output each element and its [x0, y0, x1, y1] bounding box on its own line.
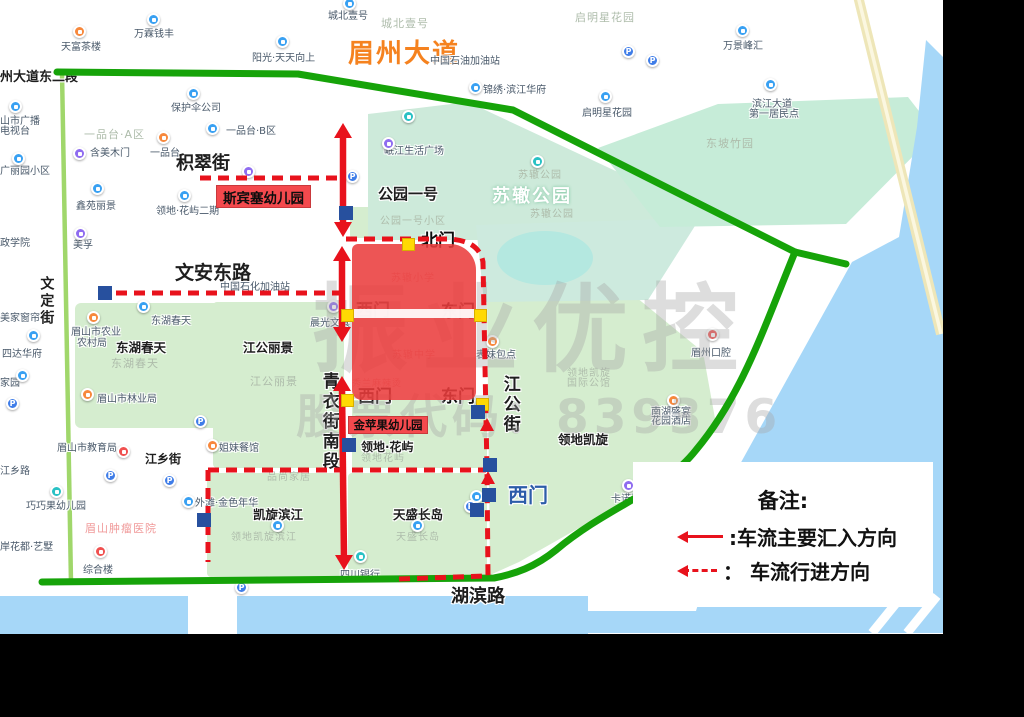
route-point-marker — [197, 513, 211, 527]
route-point-marker — [342, 438, 356, 452]
gate-marker — [341, 394, 354, 407]
letterbox-bottom — [0, 634, 943, 717]
gate-marker — [402, 238, 415, 251]
traffic-organization-map: 眉州大道州大道东二段积翠街文安东路文定街青衣街南段江公街江乡街湖滨路公园一号东湖… — [0, 0, 1024, 717]
legend-item-direction: ： 车流行进方向 — [633, 556, 933, 585]
route-point-marker — [98, 286, 112, 300]
gate-marker — [341, 309, 354, 322]
legend-box: 备注: :车流主要汇入方向 ： 车流行进方向 — [633, 462, 933, 607]
route-point-marker — [483, 458, 497, 472]
route-point-marker — [470, 503, 484, 517]
letterbox-right — [943, 0, 1024, 717]
route-point-marker — [339, 206, 353, 220]
kindergarten-label-sibinsai: 斯宾塞幼儿园 — [216, 185, 311, 208]
map-canvas: 眉州大道州大道东二段积翠街文安东路文定街青衣街南段江公街江乡街湖滨路公园一号东湖… — [0, 0, 943, 634]
route-point-marker — [482, 488, 496, 502]
gate-marker — [474, 309, 487, 322]
kindergarten-label-jinpingguo: 金苹果幼儿园 — [348, 416, 428, 434]
legend-item-inflow: :车流主要汇入方向 — [633, 522, 933, 551]
legend-title: 备注: — [633, 485, 933, 515]
legend-item-label: :车流主要汇入方向 — [729, 522, 897, 551]
dashed-red-arrow-icon — [683, 569, 717, 572]
route-point-marker — [471, 405, 485, 419]
solid-red-arrow-icon — [683, 535, 723, 538]
legend-item-label: ： 车流行进方向 — [723, 556, 870, 585]
